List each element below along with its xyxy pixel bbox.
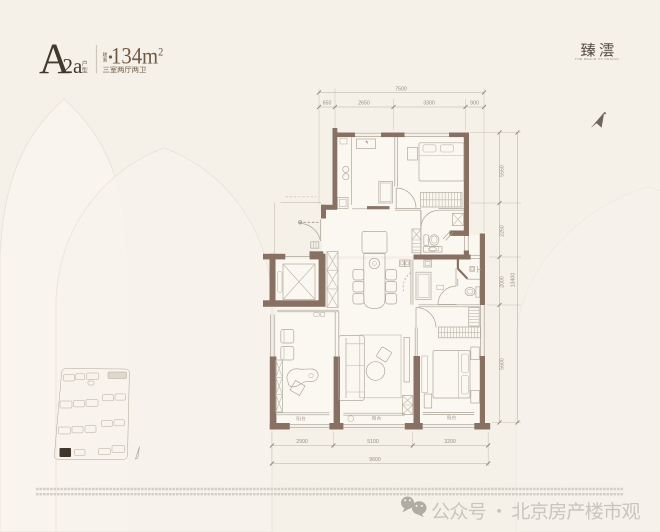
svg-text:2250: 2250 bbox=[500, 225, 506, 237]
svg-text:7500: 7500 bbox=[395, 87, 407, 93]
svg-text:5100: 5100 bbox=[367, 439, 379, 445]
svg-text:2000: 2000 bbox=[500, 276, 506, 288]
svg-text:3300: 3300 bbox=[423, 101, 435, 107]
svg-text:650: 650 bbox=[323, 101, 332, 107]
svg-text:134m2: 134m2 bbox=[111, 44, 163, 69]
svg-text:THE REALM OF DESIGN: THE REALM OF DESIGN bbox=[575, 57, 619, 61]
svg-text:13400: 13400 bbox=[511, 273, 517, 288]
svg-text:2900: 2900 bbox=[296, 439, 308, 445]
svg-text:3200: 3200 bbox=[444, 439, 456, 445]
svg-text:5600: 5600 bbox=[500, 358, 506, 370]
svg-text:2a: 2a bbox=[63, 54, 84, 78]
svg-text:2650: 2650 bbox=[358, 101, 370, 107]
svg-text:9600: 9600 bbox=[369, 457, 381, 463]
svg-text:900: 900 bbox=[470, 101, 479, 107]
svg-text:5550: 5550 bbox=[500, 165, 506, 177]
